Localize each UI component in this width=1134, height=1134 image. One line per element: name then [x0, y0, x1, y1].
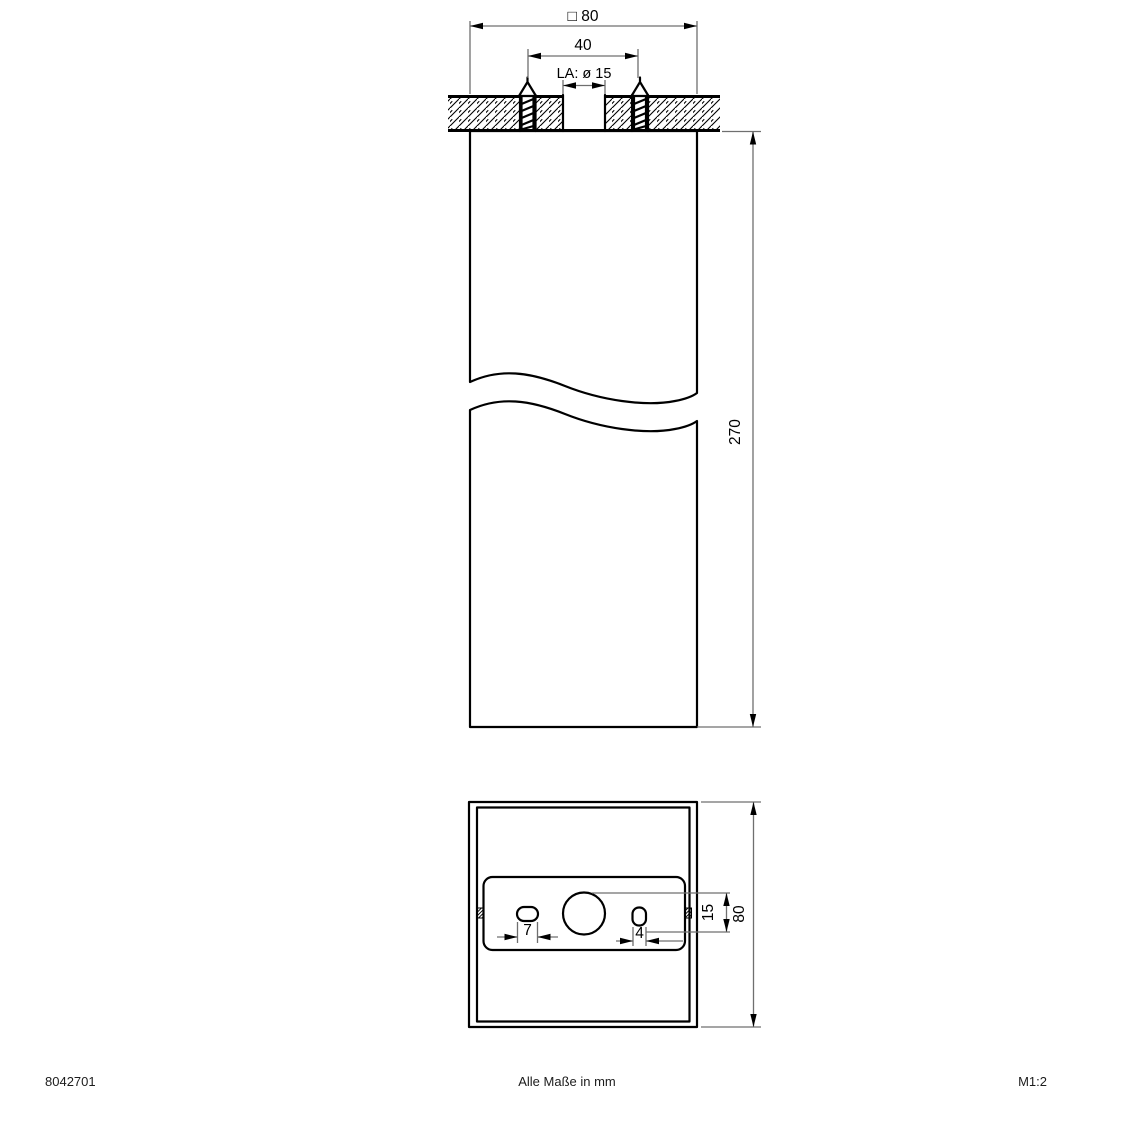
ceiling-hatch-segment — [648, 96, 720, 130]
dim-slot-left-label: 7 — [523, 922, 532, 939]
dim-slot-right-label: 4 — [635, 925, 644, 942]
dim-cutout-diameter-label: 15 — [700, 904, 717, 921]
dim-overall-width-label: □ 80 — [568, 8, 599, 25]
dim-body-width-label: 80 — [731, 905, 748, 923]
ceiling-hatch-segment — [448, 96, 520, 130]
ceiling-hatch-segment — [605, 96, 632, 130]
canvas-background — [0, 0, 1134, 1134]
clamp-tab-right — [685, 908, 692, 918]
technical-drawing: □ 80 40 LA: ø 15 270 — [0, 0, 1134, 1134]
ceiling-hatch-segment — [536, 96, 564, 130]
scale-label: M1:2 — [1018, 1074, 1047, 1089]
dim-cutout-label: LA: ø 15 — [557, 66, 612, 82]
drawing-sheet: □ 80 40 LA: ø 15 270 — [0, 0, 1134, 1134]
units-note: Alle Maße in mm — [518, 1074, 616, 1089]
clamp-tab-left — [477, 908, 484, 918]
article-number: 8042701 — [45, 1074, 96, 1089]
dim-height-label: 270 — [727, 419, 744, 445]
dim-screw-spacing-label: 40 — [574, 37, 592, 54]
